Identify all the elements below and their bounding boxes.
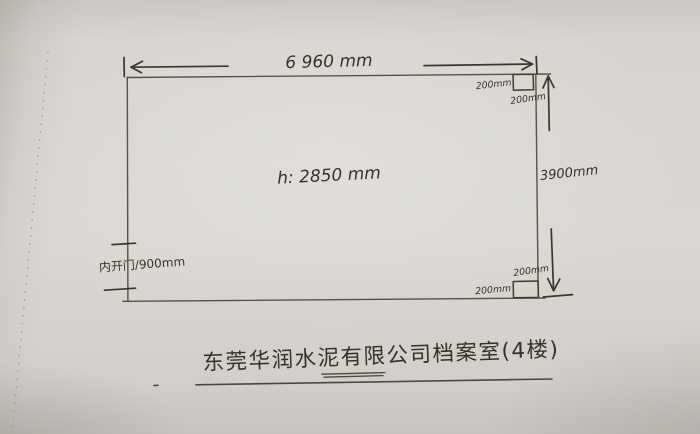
bottom-right-column: 200mm 200mm [475, 263, 550, 298]
caption-block: 东莞华润水泥有限公司档案室(4楼) [154, 337, 560, 385]
paper-photo: 6 960 mm 200mm 200mm 3900mm 200mm 200mm [0, 0, 700, 434]
top-right-column-depth-label: 200mm [510, 91, 547, 107]
top-right-column-width-label: 200mm [475, 77, 512, 92]
bottom-right-column-width-label: 200mm [475, 283, 512, 297]
caption-underline-1 [322, 373, 385, 375]
caption-underline-2 [324, 376, 383, 378]
column-square [513, 281, 538, 298]
dimension-tick-bottom [544, 295, 573, 297]
top-dimension: 6 960 mm [124, 51, 537, 77]
door-opening: 内开门/900mm [98, 243, 185, 290]
caption-text: 东莞华润水泥有限公司档案室(4楼) [202, 337, 560, 376]
floor-plan-sketch: 6 960 mm 200mm 200mm 3900mm 200mm 200mm [0, 0, 700, 434]
room-outline [123, 74, 551, 301]
dimension-line-upper-segment [548, 76, 549, 131]
dimension-line-left-segment [131, 66, 228, 67]
door-tick-lower [105, 288, 136, 290]
caption-rule [196, 379, 552, 385]
dimension-tick-right [536, 57, 537, 74]
dimension-line-right-segment [424, 64, 533, 66]
paper-perforation-line [12, 52, 48, 434]
wall-top [127, 74, 551, 78]
ceiling-height-label: h: 2850 mm [277, 163, 382, 188]
right-dimension: 3900mm [539, 76, 599, 297]
top-width-label: 6 960 mm [285, 51, 373, 73]
right-height-label: 3900mm [539, 163, 599, 184]
column-square [513, 74, 534, 90]
door-label: 内开门/900mm [98, 253, 185, 274]
dimension-line-lower-segment [551, 229, 553, 291]
bottom-right-column-depth-label: 200mm [513, 263, 550, 279]
door-tick-upper [112, 243, 136, 244]
wall-bottom [123, 298, 545, 301]
